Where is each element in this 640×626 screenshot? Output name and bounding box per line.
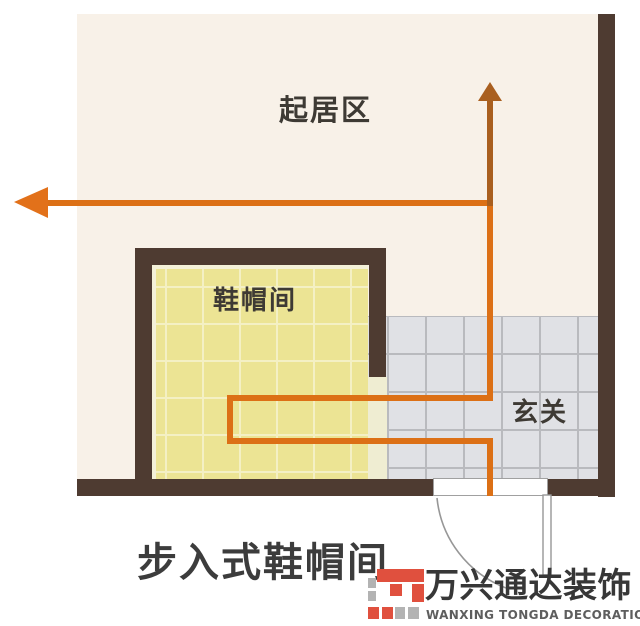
brand-name-cn: 万兴通达装饰 [425, 568, 632, 605]
entry-door-opening [433, 478, 548, 496]
arrow-left-icon [14, 187, 48, 218]
page-title: 步入式鞋帽间 [137, 530, 389, 588]
brand-logo-icon [368, 569, 425, 619]
shoe-room-doorway-threshold [366, 377, 387, 479]
shoe-room-wall-right [369, 248, 386, 377]
label-hallway: 玄关 [512, 399, 568, 428]
brand-name-en: WANXING TONGDA DECORATION [426, 608, 640, 622]
wall-right [598, 14, 615, 497]
floorplan-canvas: 起居区 鞋帽间 玄关 步入式鞋帽间 万兴通达装饰 WANXING TONGDA … [0, 0, 640, 626]
label-shoe-room: 鞋帽间 [213, 287, 297, 316]
watermark: 万兴通达装饰 WANXING TONGDA DECORATION [368, 568, 636, 624]
label-living-area: 起居区 [279, 95, 372, 127]
shoe-room-wall-top [135, 248, 386, 265]
shoe-room-wall-left [135, 248, 152, 479]
